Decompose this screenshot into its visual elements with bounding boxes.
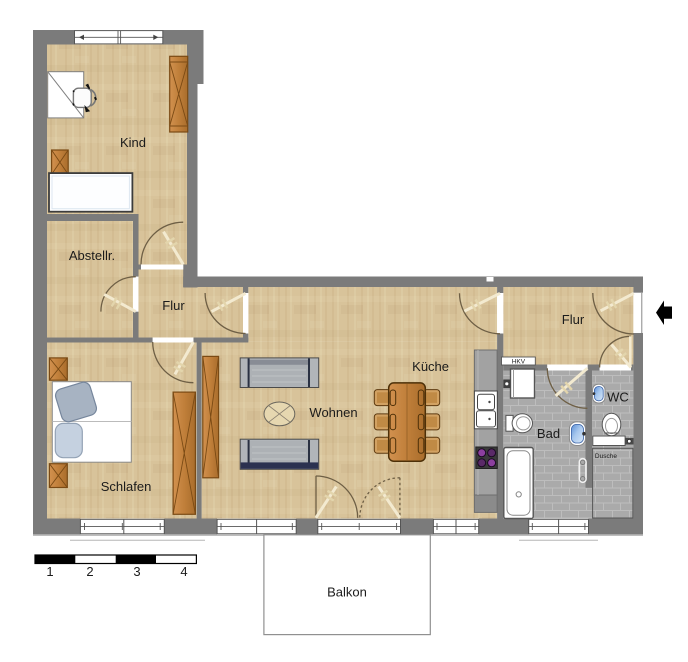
svg-text:4: 4: [180, 564, 187, 579]
svg-text:1: 1: [46, 564, 53, 579]
svg-text:Wohnen: Wohnen: [309, 405, 357, 420]
svg-text:HKV: HKV: [512, 359, 526, 366]
svg-text:Kind: Kind: [120, 135, 146, 150]
svg-text:Abstellr.: Abstellr.: [69, 248, 115, 263]
svg-text:2: 2: [86, 564, 93, 579]
svg-text:WC: WC: [607, 390, 629, 405]
svg-text:Schlafen: Schlafen: [101, 479, 152, 494]
svg-text:Flur: Flur: [562, 312, 585, 327]
svg-text:Dusche: Dusche: [595, 453, 617, 460]
svg-text:Balkon: Balkon: [327, 585, 367, 600]
svg-text:3: 3: [133, 564, 140, 579]
svg-text:Bad: Bad: [537, 426, 560, 441]
svg-text:Flur: Flur: [162, 298, 185, 313]
svg-text:Küche: Küche: [412, 359, 449, 374]
